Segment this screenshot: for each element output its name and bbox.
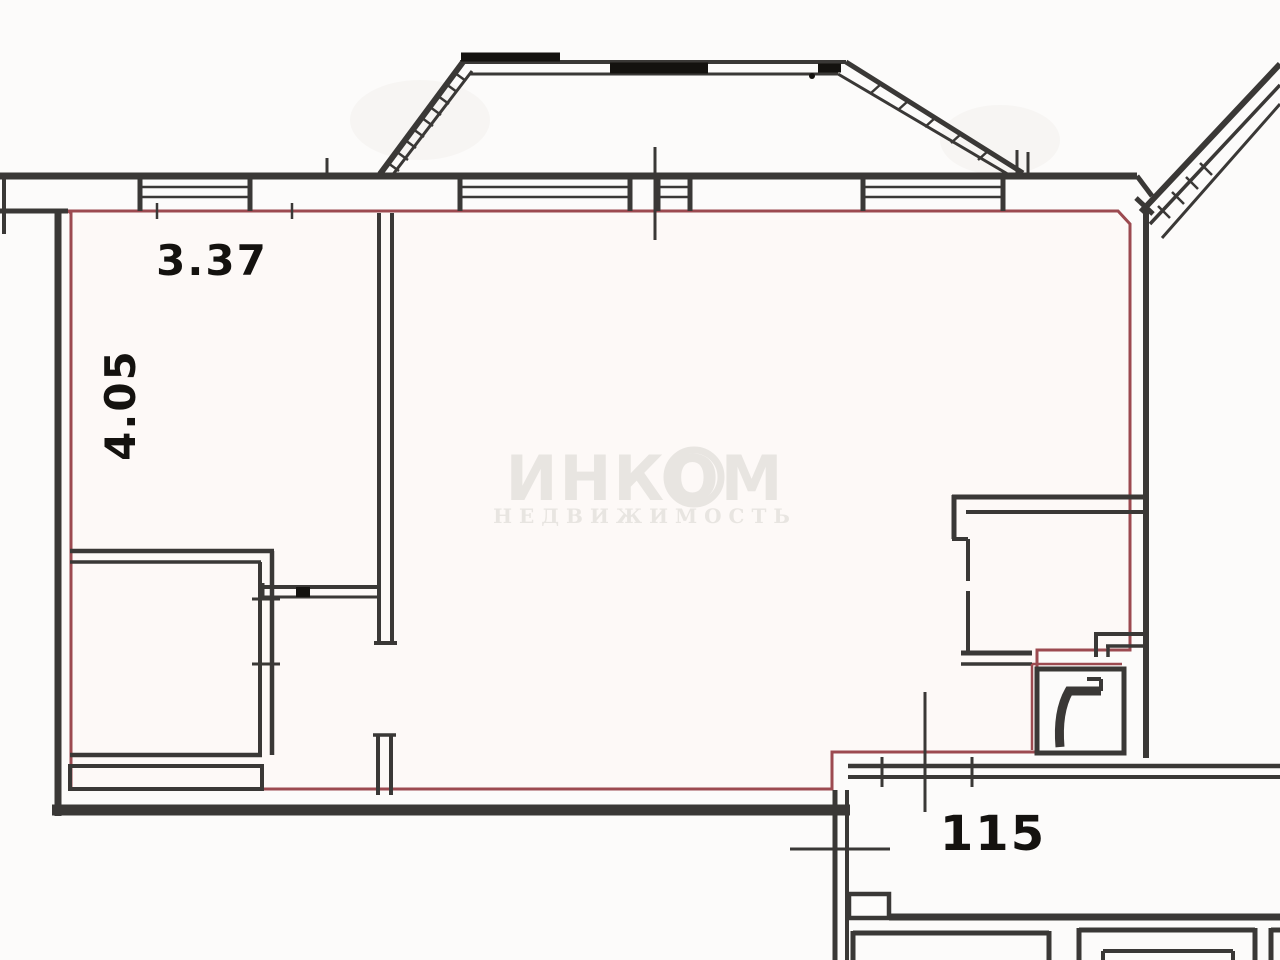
ventilation-shaft: [1032, 664, 1124, 753]
watermark: ИНКОМ НЕДВИЖИМОСТЬ: [493, 442, 797, 528]
room-height-dimension: 4.05: [96, 349, 145, 461]
watermark-subtitle: НЕДВИЖИМОСТЬ: [493, 504, 797, 528]
floor-plan: ИНКОМ НЕДВИЖИМОСТЬ 3.37 4.05 115: [0, 0, 1280, 960]
floor-plan-page: ИНКОМ НЕДВИЖИМОСТЬ 3.37 4.05 115: [0, 0, 1280, 960]
facade-windows: [140, 176, 1003, 211]
stair-landing: [835, 757, 1280, 960]
neighbor-section-wall: [1136, 64, 1280, 238]
landing-number: 115: [940, 806, 1046, 862]
room-width-dimension: 3.37: [156, 236, 268, 285]
